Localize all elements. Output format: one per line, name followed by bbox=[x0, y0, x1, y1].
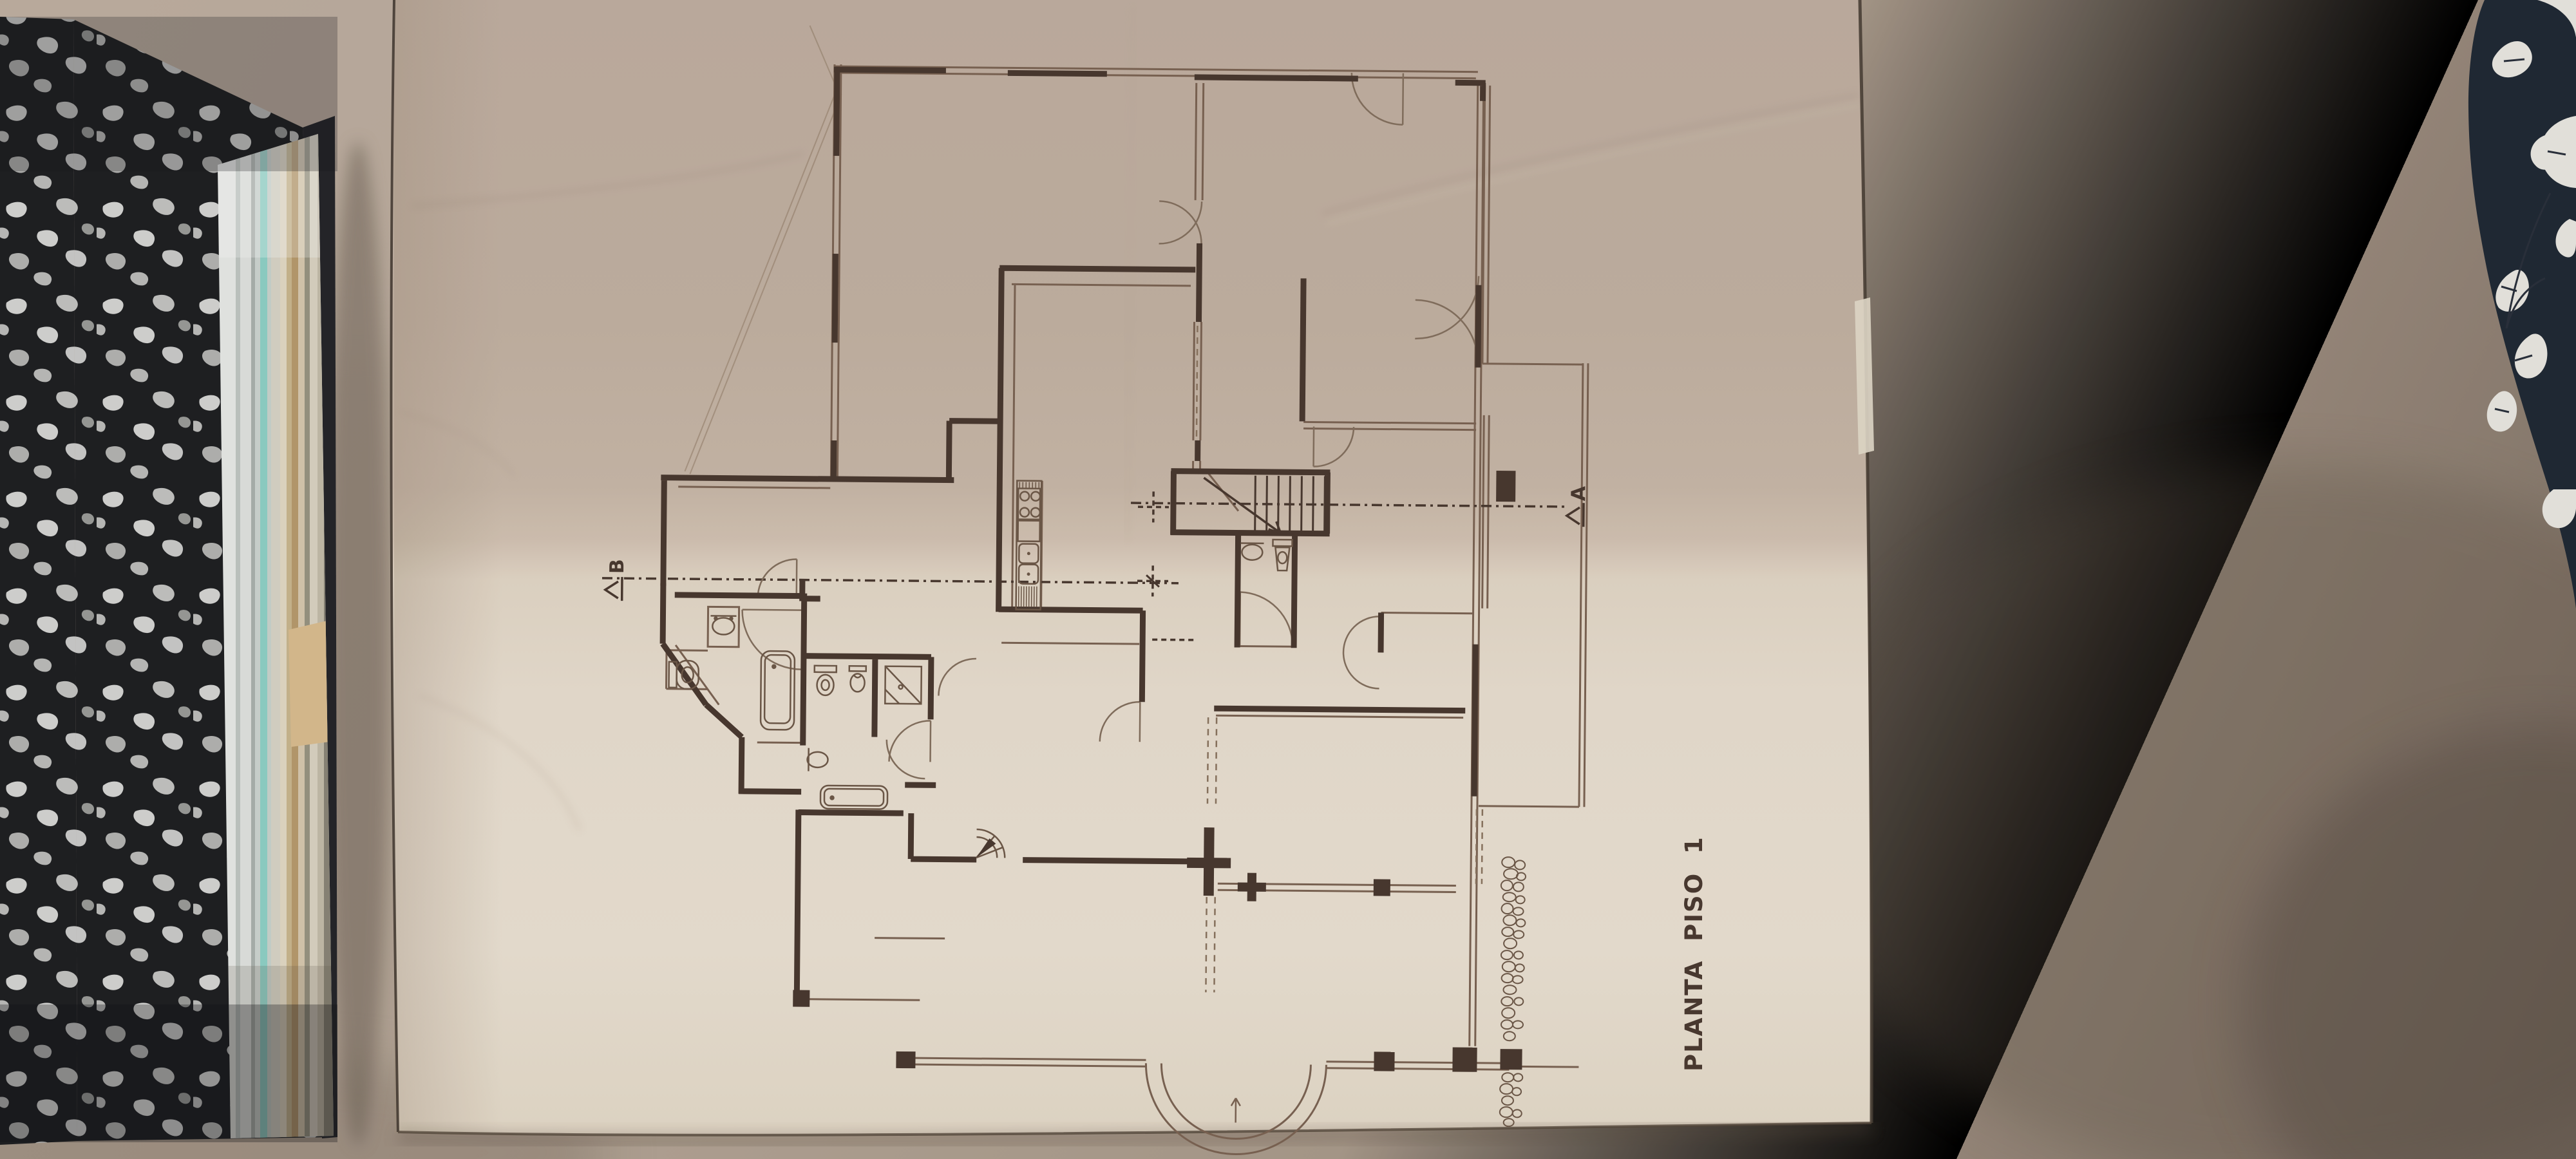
photo-of-floor-plan-scene: B A PLANTA PISO 1 bbox=[0, 0, 2576, 1159]
scene-canvas: B A PLANTA PISO 1 bbox=[0, 0, 2576, 1159]
grain-overlay bbox=[0, 0, 2576, 1159]
